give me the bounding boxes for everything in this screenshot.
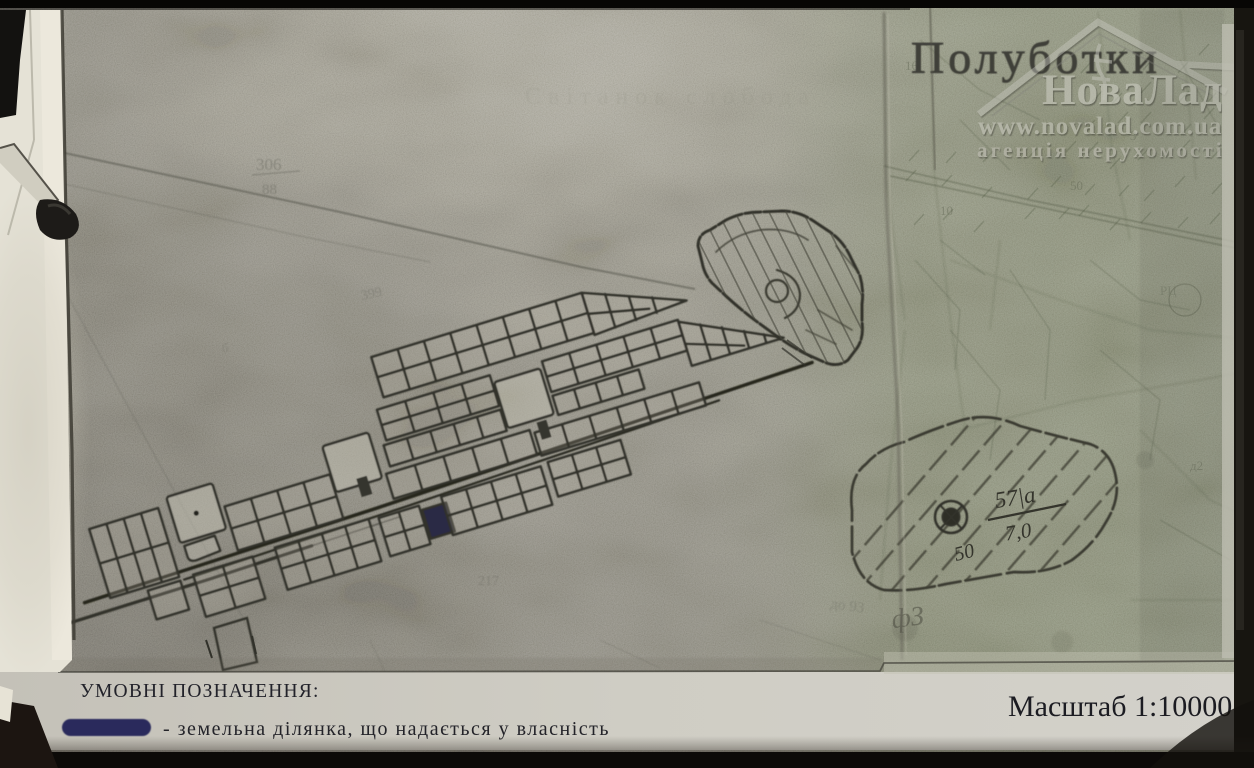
svg-text:88: 88: [262, 182, 277, 198]
svg-text:306: 306: [256, 155, 282, 174]
svg-text:фЗ: фЗ: [889, 600, 925, 634]
svg-text:217: 217: [478, 574, 499, 589]
svg-text:УМОВНІ ПОЗНАЧЕННЯ:: УМОВНІ ПОЗНАЧЕННЯ:: [80, 681, 320, 702]
svg-text:Масштаб 1:10000: Масштаб 1:10000: [1008, 690, 1232, 723]
svg-text:б: б: [222, 340, 229, 355]
svg-text:7,0: 7,0: [1003, 518, 1033, 546]
svg-text:Світанок слобода: Світанок слобода: [525, 84, 816, 110]
